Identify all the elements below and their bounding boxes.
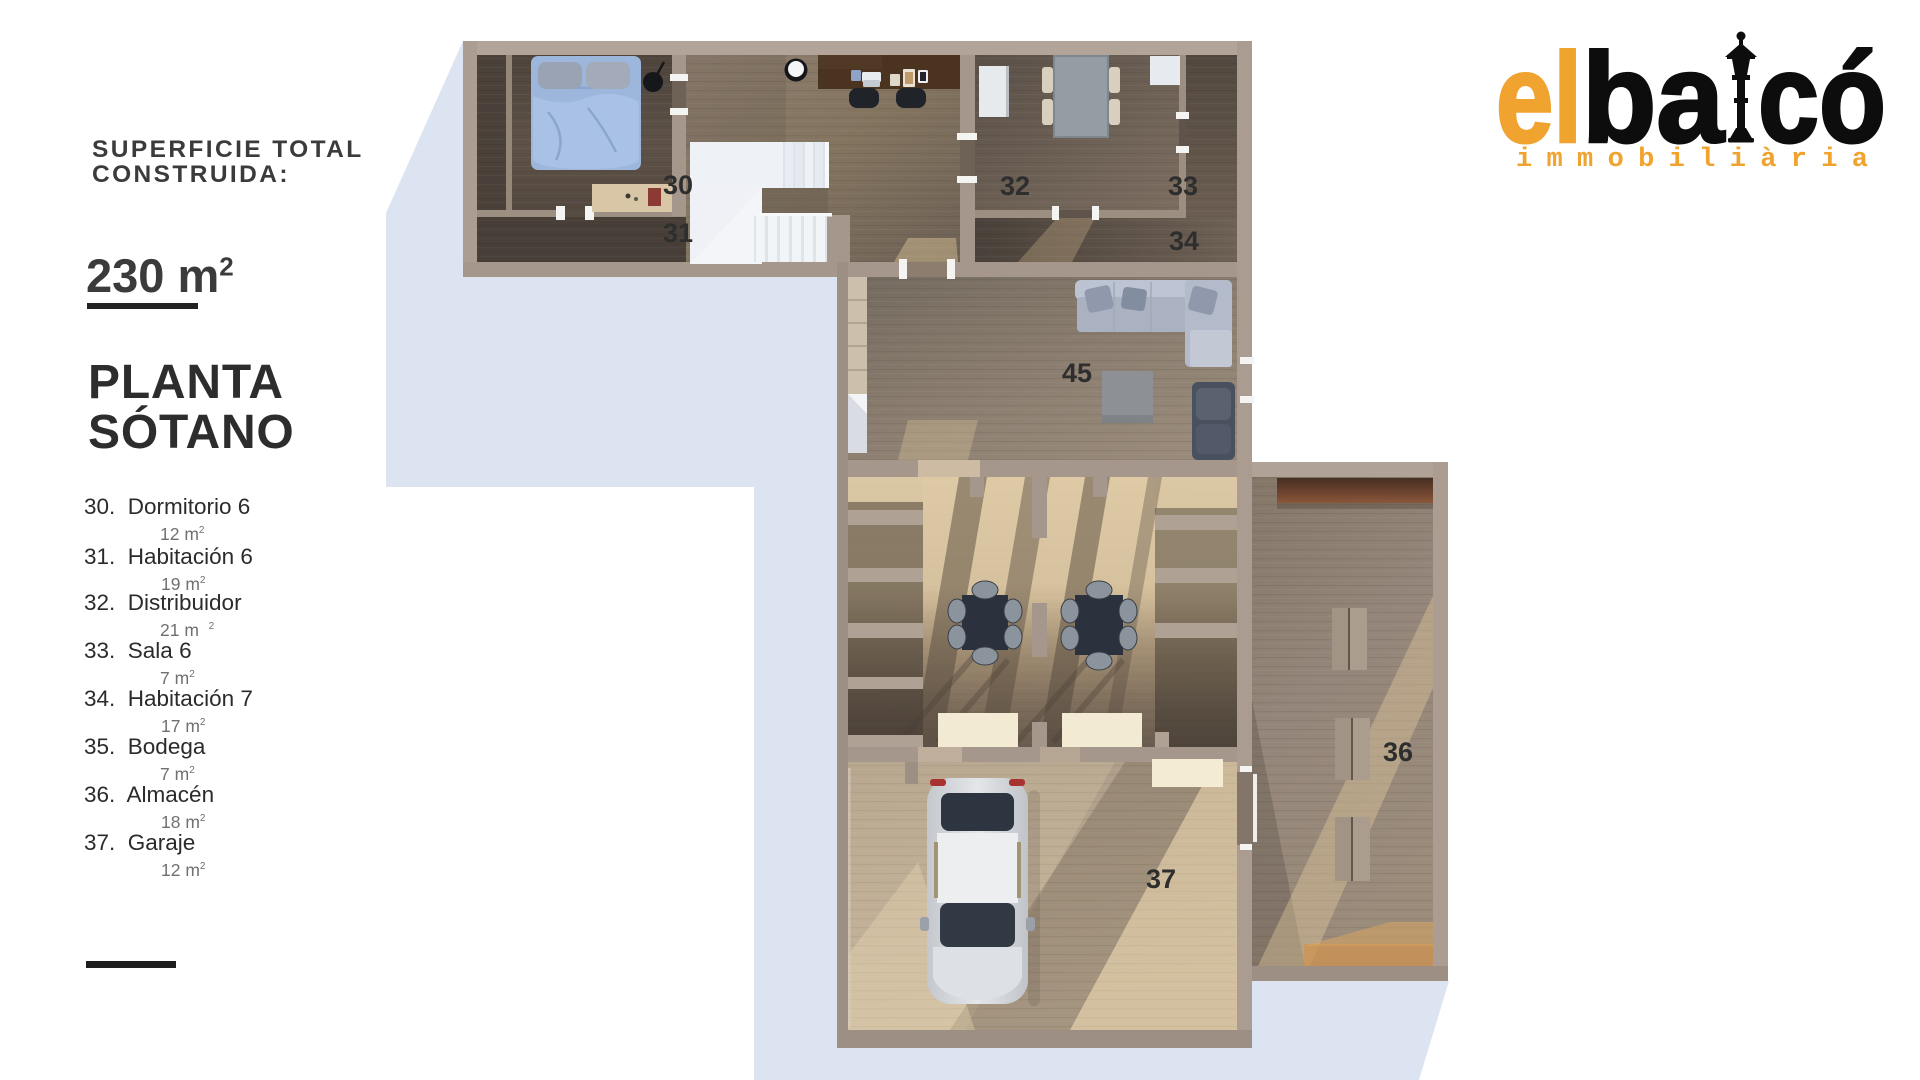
svg-text:45: 45 <box>1062 358 1092 388</box>
svg-text:33: 33 <box>1168 171 1198 201</box>
svg-text:37: 37 <box>1146 864 1176 894</box>
svg-text:31: 31 <box>663 218 693 248</box>
svg-text:32: 32 <box>1000 171 1030 201</box>
svg-text:36: 36 <box>1383 737 1413 767</box>
svg-text:el: el <box>1496 27 1582 169</box>
svg-text:34: 34 <box>1169 226 1199 256</box>
svg-text:30: 30 <box>663 170 693 200</box>
